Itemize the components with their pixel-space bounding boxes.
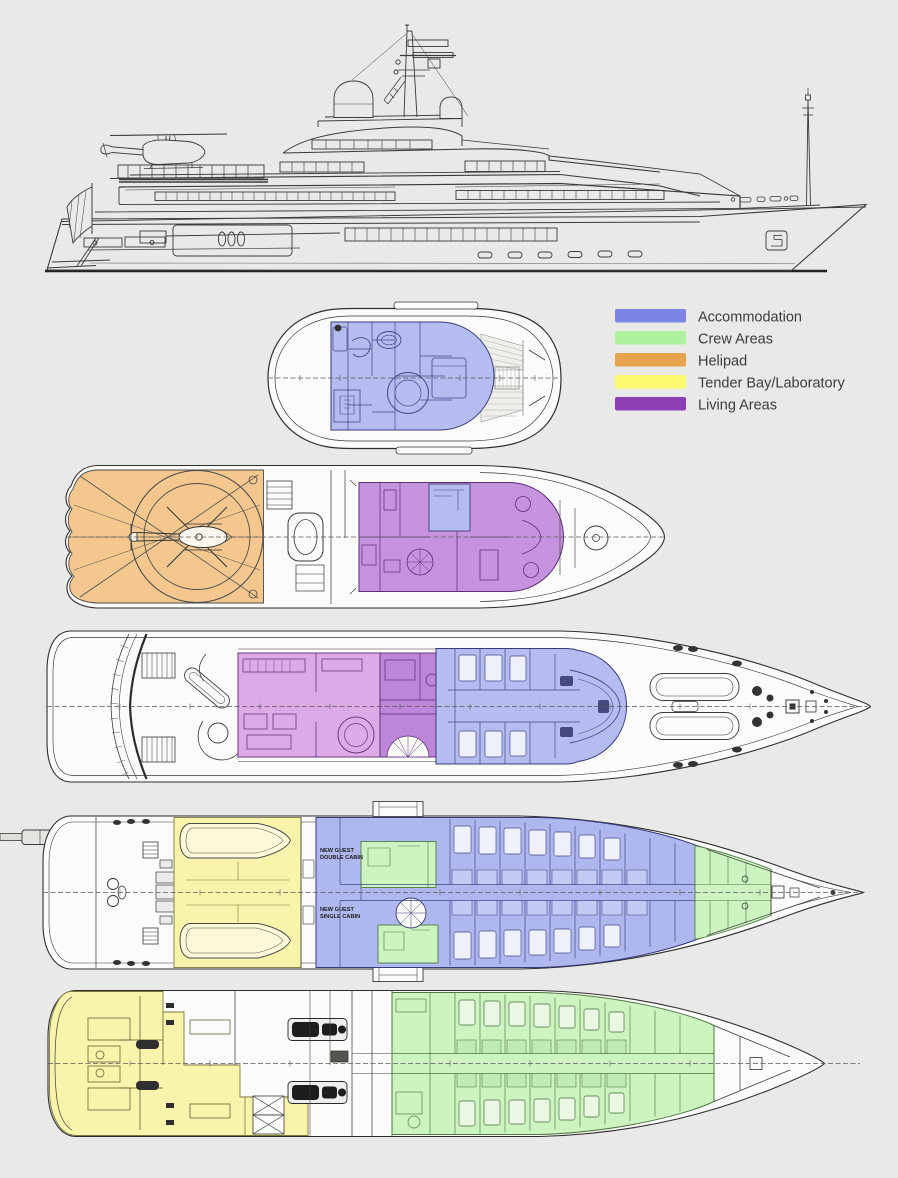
svg-text:NEW GUEST: NEW GUEST [320, 848, 354, 854]
svg-text:Crew Areas: Crew Areas [698, 332, 773, 348]
svg-text:Accommodation: Accommodation [698, 310, 802, 326]
svg-text:NEW GUEST: NEW GUEST [320, 907, 354, 913]
svg-text:Living Areas: Living Areas [698, 398, 777, 414]
svg-text:Helipad: Helipad [698, 354, 747, 370]
svg-text:DOUBLE CABIN: DOUBLE CABIN [320, 855, 363, 861]
svg-text:Tender Bay/Laboratory: Tender Bay/Laboratory [698, 376, 845, 392]
